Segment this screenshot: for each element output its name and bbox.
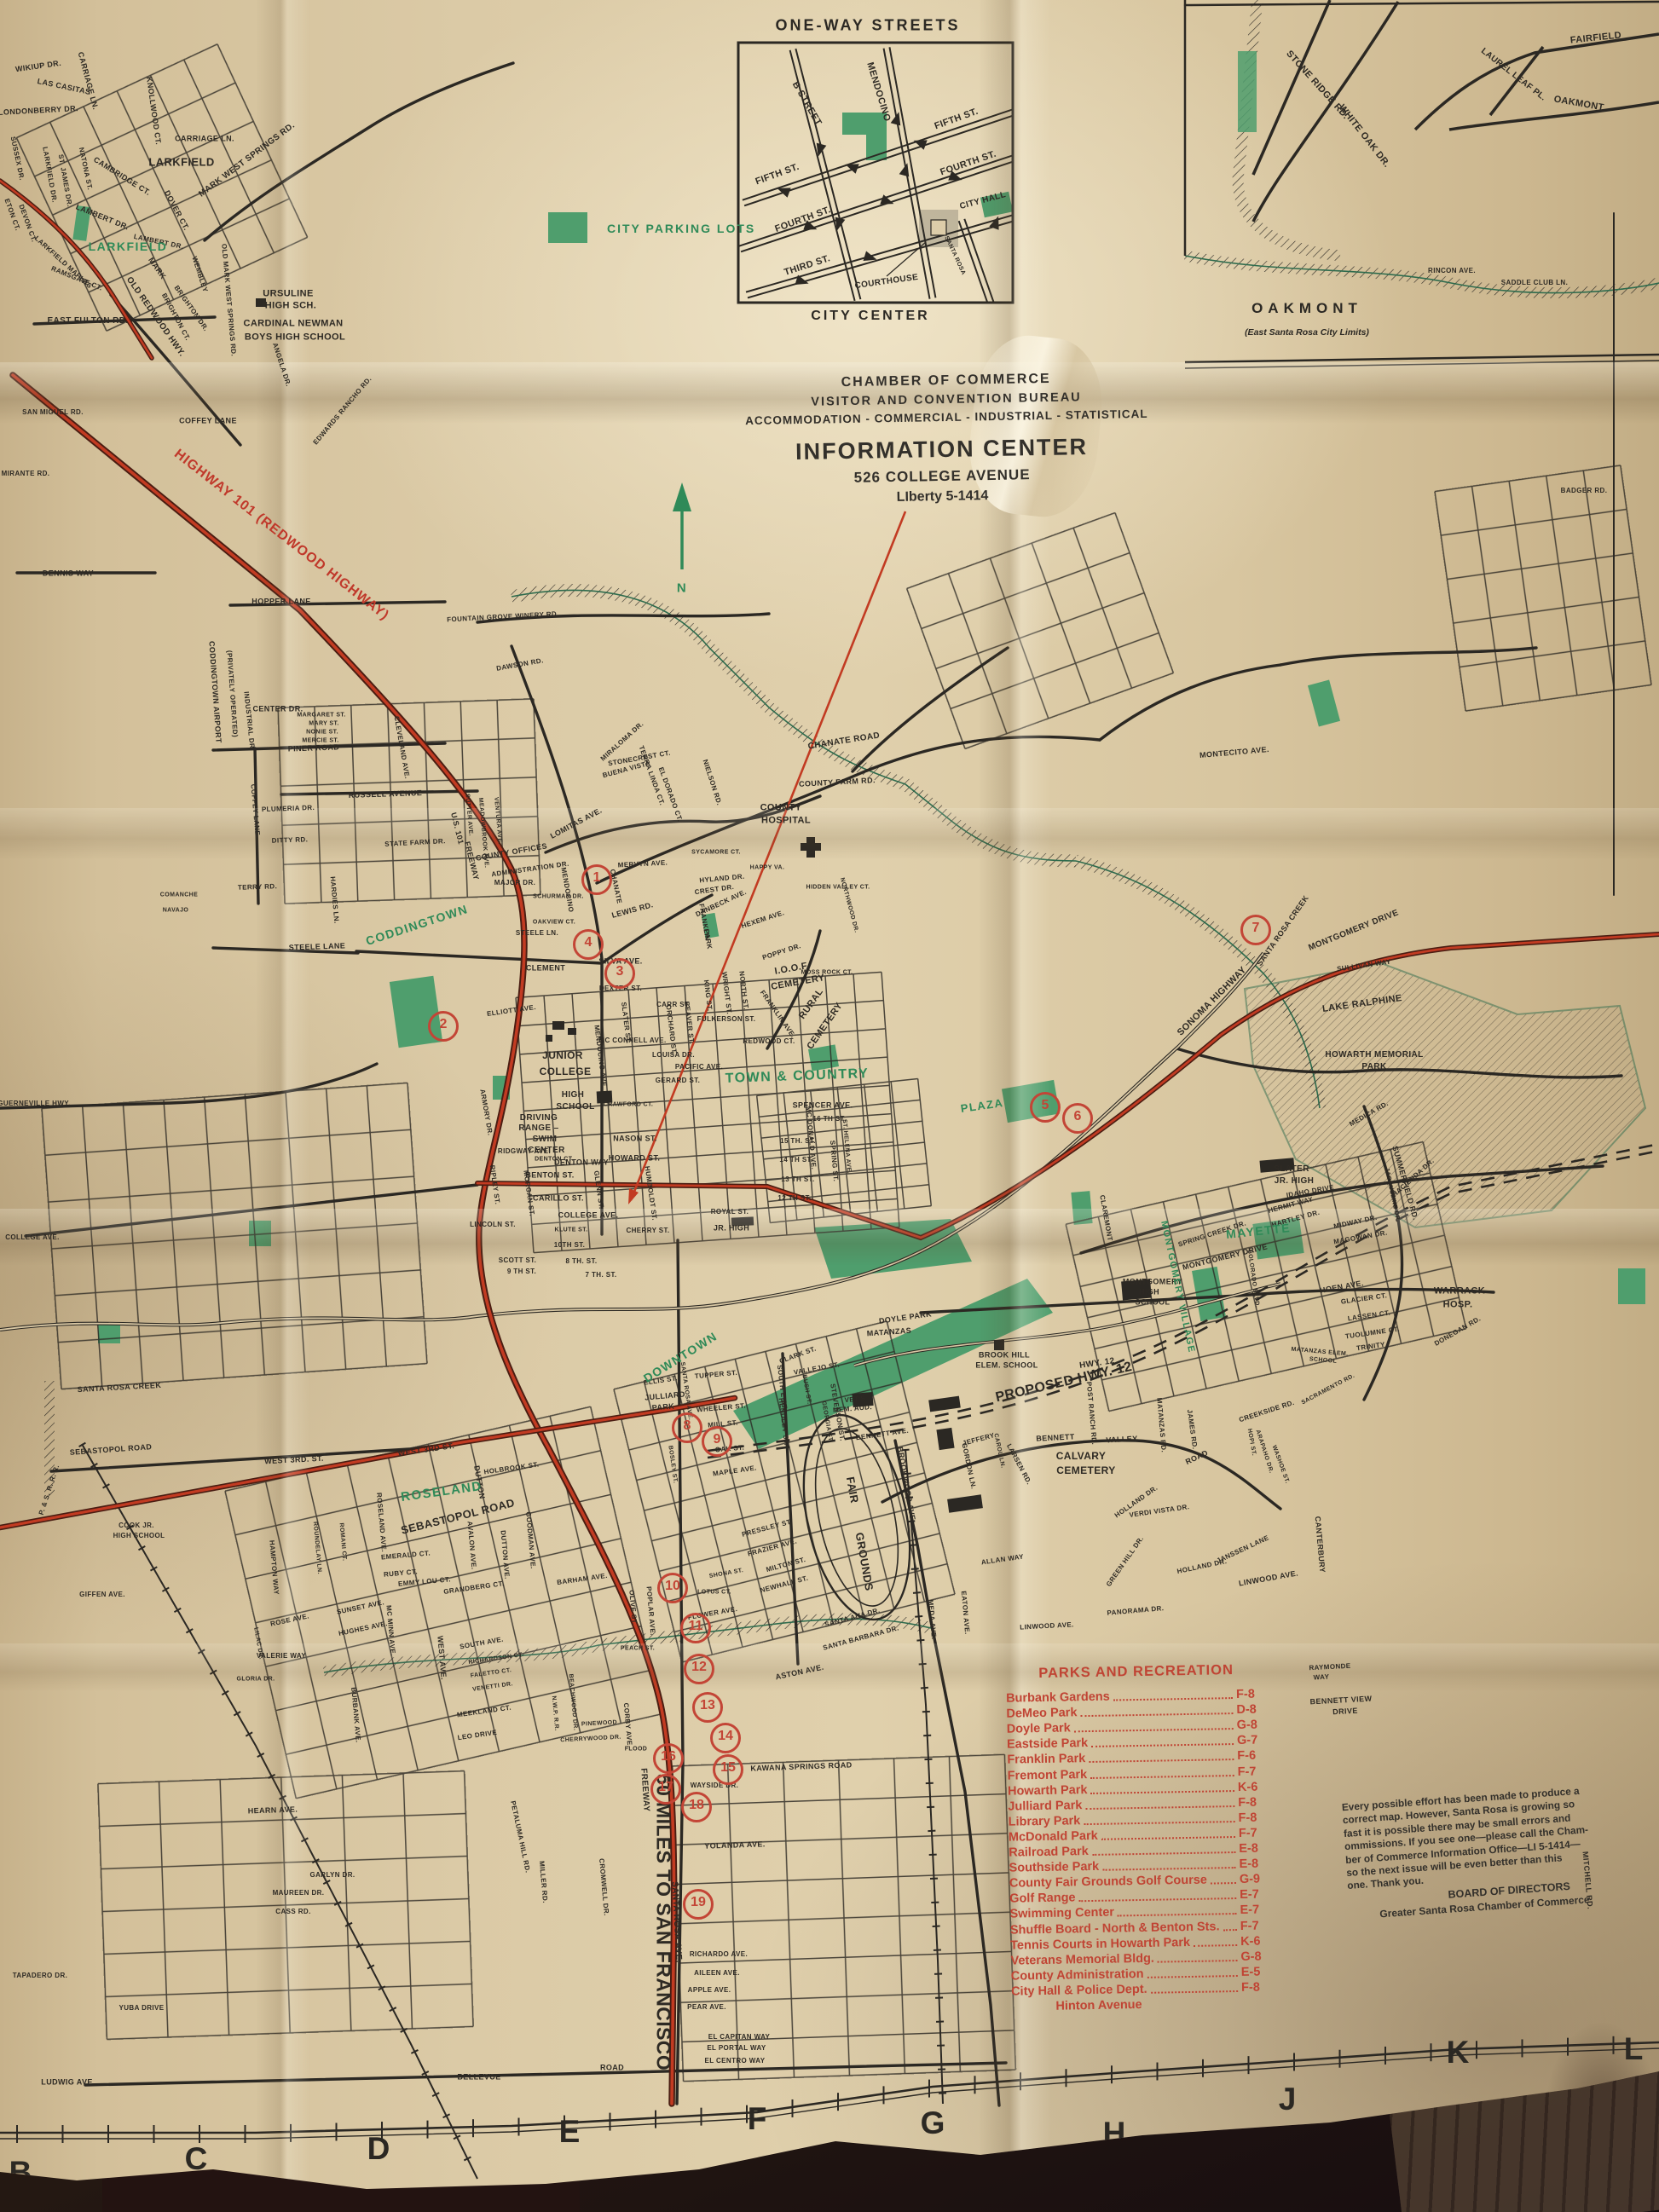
street-label: TAPADERO DR. bbox=[13, 1972, 68, 1979]
route-marker-4: 4 bbox=[573, 929, 604, 960]
street-label: ASTON AVE. bbox=[775, 1664, 824, 1682]
street-label: LARKFIELD bbox=[148, 157, 214, 168]
street-label: ELEM. SCHOOL bbox=[975, 1362, 1038, 1370]
street-label: MEEKLAND CT. bbox=[457, 1705, 512, 1719]
street-label: DEVON CT. bbox=[17, 204, 37, 243]
street-label: DUTTON AVE. bbox=[500, 1530, 511, 1580]
street-label: MARGARET ST. bbox=[297, 713, 345, 719]
street-label: DRIVE bbox=[1332, 1707, 1358, 1717]
route-marker-17: 17 bbox=[650, 1774, 681, 1805]
street-label: CLEMENT bbox=[526, 965, 565, 973]
street-label: SPENCER AVE. bbox=[793, 1102, 853, 1110]
grid-letter-L: L bbox=[1624, 2031, 1644, 2067]
street-label: OAKVIEW CT. bbox=[533, 920, 575, 926]
street-label: MOSS ROCK CT. bbox=[801, 970, 853, 976]
street-label: SAN MIGUEL RD. bbox=[22, 409, 84, 416]
street-label: DAWSON RD. bbox=[496, 657, 545, 673]
street-label: FRAZIER AVE. bbox=[747, 1538, 798, 1557]
street-label: LEO DRIVE bbox=[457, 1730, 497, 1741]
grid-letter-H: H bbox=[1103, 2116, 1126, 2151]
street-label: SONOMA HIGHWAY bbox=[1176, 965, 1248, 1037]
street-label: CREEKSIDE RD. bbox=[1238, 1400, 1295, 1424]
street-label: POPPY DR. bbox=[761, 943, 801, 962]
street-label: MIRANTE RD. bbox=[2, 471, 50, 477]
street-label: HIGH SCH. bbox=[265, 302, 316, 311]
street-label: HAPPY VA. bbox=[750, 865, 785, 871]
street-label: STEELE LANE bbox=[289, 942, 346, 951]
street-label: BOYS HIGH SCHOOL bbox=[245, 333, 345, 343]
street-label: TERRY RD. bbox=[238, 883, 278, 892]
street-label: KNOLLWOOD CT. bbox=[145, 76, 162, 145]
street-label: LOMITAS AVE. bbox=[549, 806, 604, 840]
street-label: FAIRFIELD bbox=[1569, 31, 1621, 45]
street-label: FREEWAY bbox=[639, 1768, 650, 1812]
street-label: CAMBRIDGE CT. bbox=[92, 156, 152, 197]
street-label: MAGOWAN DR. bbox=[1333, 1230, 1388, 1246]
street-label: LARSEN RD. bbox=[1005, 1443, 1032, 1486]
street-label: KING ST. bbox=[702, 979, 713, 1012]
street-label: 12 TH ST. bbox=[777, 1195, 811, 1202]
route-marker-15: 15 bbox=[713, 1754, 743, 1785]
street-label: FOURTH ST. bbox=[774, 205, 832, 234]
street-label: SUNSET AVE. bbox=[336, 1599, 384, 1616]
street-label: RAYMONDE bbox=[1309, 1663, 1350, 1672]
street-label: GOODMAN AVE. bbox=[524, 1511, 536, 1569]
street-label: PARK bbox=[702, 929, 713, 950]
street-label: JR. HIGH bbox=[1275, 1177, 1315, 1186]
street-label: COLLEGE AVE. bbox=[558, 1212, 619, 1220]
street-label: CITY HALL bbox=[959, 191, 1007, 211]
information-center-block: INFORMATION CENTER 526 COLLEGE AVENUE LI… bbox=[741, 433, 1142, 508]
street-label: EDWARDS RANCHO RD. bbox=[312, 376, 373, 447]
street-label: (PRIVATELY OPERATED) bbox=[225, 650, 238, 738]
street-label: B STREET bbox=[790, 80, 823, 127]
street-label: WEST 3RD ST. bbox=[397, 1442, 454, 1458]
paper-map: WIKIUP DR.LAS CASITASLONDONBERRY DR.CARR… bbox=[0, 0, 1659, 2212]
street-label: COFFEY LANE bbox=[249, 783, 260, 835]
street-label: WEST AVE. bbox=[436, 1636, 448, 1681]
parking-lots-swatch bbox=[548, 212, 587, 243]
route-marker-18: 18 bbox=[681, 1792, 712, 1822]
route-marker-2: 2 bbox=[428, 1011, 459, 1042]
grid-letter-E: E bbox=[559, 2114, 581, 2150]
street-label: CRAWFORD CT. bbox=[604, 1102, 653, 1108]
street-label: 10TH ST. bbox=[554, 1242, 586, 1249]
street-label: STATE FARM DR. bbox=[384, 838, 446, 848]
street-label: HARDIES LN. bbox=[329, 876, 340, 924]
street-label: FOURTH ST. bbox=[939, 150, 998, 178]
street-label: CENTER DR. bbox=[252, 706, 303, 713]
street-label: LAKE RALPHINE bbox=[1321, 994, 1402, 1014]
street-label: SANTA ANA DR. bbox=[824, 1607, 882, 1628]
street-label: ARAPAHO DR. bbox=[1254, 1429, 1274, 1475]
street-label: N.W.P. R.R. bbox=[551, 1695, 560, 1731]
street-label: SANTA ROSA CREEK bbox=[78, 1382, 162, 1394]
route-marker-5: 5 bbox=[1030, 1092, 1061, 1123]
street-label: REDWOOD CT. bbox=[743, 1038, 795, 1045]
street-label: VET'S bbox=[844, 1395, 865, 1404]
street-label: NIELSON RD. bbox=[702, 759, 723, 806]
street-label: VENETTI DR. bbox=[472, 1681, 513, 1693]
street-label: GLACIER CT. bbox=[1340, 1292, 1387, 1306]
street-label: ST. HELENA AVE. bbox=[841, 1119, 853, 1174]
street-label: RIPLEY ST. bbox=[488, 1164, 500, 1204]
street-label: VALLEY bbox=[1106, 1435, 1138, 1445]
street-label: GERARD ST. bbox=[656, 1077, 700, 1084]
street-label: GARLYN DR. bbox=[309, 1872, 355, 1879]
street-label: BEAVER ST. bbox=[683, 1001, 695, 1044]
street-label: BADGER RD. bbox=[1561, 488, 1608, 494]
district-label: ROSELAND bbox=[400, 1480, 483, 1504]
street-label: YUBA DRIVE bbox=[118, 2005, 164, 2012]
street-label: SUSSEX DR. bbox=[9, 136, 26, 182]
street-label: CAROL LN. bbox=[992, 1433, 1005, 1469]
street-label: CARDINAL NEWMAN bbox=[243, 320, 343, 329]
street-label: CLEVELAND AVE. bbox=[393, 716, 411, 780]
street-label: BENNETT AVE. bbox=[855, 1428, 909, 1442]
street-label: SULLIVAN WAY bbox=[1337, 959, 1391, 973]
street-label: MATANZAS bbox=[867, 1327, 912, 1338]
oakmont-inset-subtitle: (East Santa Rosa City Limits) bbox=[1245, 327, 1369, 338]
street-label: MILLER RD. bbox=[538, 1861, 548, 1903]
street-label: OAKMONT bbox=[1553, 95, 1605, 113]
street-label: WRIGHT ST. bbox=[720, 972, 732, 1015]
street-label: HAMPTON WAY bbox=[268, 1540, 280, 1596]
street-label: MONTECITO AVE. bbox=[1199, 746, 1269, 759]
street-label: ROSE AVE. bbox=[270, 1613, 310, 1627]
street-label: RUBY CT. bbox=[384, 1568, 418, 1578]
street-label: ROSELAND AVE. bbox=[375, 1493, 387, 1553]
street-label: DITTY RD. bbox=[272, 836, 309, 844]
oakmont-inset-title: OAKMONT bbox=[1251, 300, 1362, 317]
street-label: SCHOOL bbox=[556, 1103, 594, 1112]
street-label: SYCAMORE CT. bbox=[691, 850, 741, 856]
street-label: STEELE LN. bbox=[516, 930, 558, 937]
street-label: RINCON AVE. bbox=[1428, 268, 1476, 274]
street-label: COMANCHE bbox=[160, 892, 198, 898]
street-label: 7 TH. ST. bbox=[586, 1272, 617, 1279]
street-label: VALERIE WAY bbox=[257, 1653, 306, 1660]
street-label: HOWARD ST. bbox=[609, 1155, 661, 1163]
route-marker-3: 3 bbox=[604, 958, 635, 989]
street-label: BURBANK AVE. bbox=[350, 1687, 361, 1743]
street-label: WASHOE ST. bbox=[1271, 1445, 1291, 1485]
street-label: DRIVING bbox=[520, 1114, 558, 1123]
route-marker-14: 14 bbox=[710, 1723, 741, 1753]
route-marker-9: 9 bbox=[702, 1426, 732, 1457]
street-label: SADDLE CLUB LN. bbox=[1501, 280, 1568, 286]
street-label: DONEGAN RD. bbox=[1433, 1315, 1482, 1348]
street-label: MEM. AUD. bbox=[833, 1404, 872, 1414]
street-label: LAUREL LEAF PL. bbox=[1479, 47, 1547, 103]
street-label: ROYAL ST. bbox=[711, 1209, 749, 1216]
street-label: HOSP. bbox=[1443, 1301, 1473, 1310]
parks-recreation-list: PARKS AND RECREATION Burbank GardensF-8D… bbox=[1005, 1661, 1272, 2013]
street-label: GUERNEVILLE HWY. bbox=[0, 1100, 71, 1107]
street-label: MAUREEN DR. bbox=[273, 1890, 325, 1897]
district-label: N bbox=[677, 582, 687, 595]
street-label: LOTUS CT. bbox=[697, 1590, 731, 1596]
street-label: PRESSLEY ST. bbox=[741, 1518, 793, 1539]
street-label: PANORAMA DR. bbox=[1107, 1605, 1164, 1617]
street-label: CASS RD. bbox=[275, 1909, 310, 1915]
street-label: EL CENTRO WAY bbox=[705, 2058, 766, 2065]
street-label: 14 TH ST. bbox=[779, 1157, 812, 1164]
street-label: MATANZAS RD. bbox=[1155, 1398, 1167, 1453]
street-label: ANGELA DR. bbox=[271, 342, 292, 387]
street-label: MONTGOMERY DRIVE bbox=[1182, 1243, 1269, 1272]
street-label: NEWHALL ST. bbox=[760, 1575, 809, 1595]
street-label: JUNIOR bbox=[542, 1050, 583, 1060]
street-label: GEORGIA ST. bbox=[820, 1401, 833, 1443]
street-label: HOSPITAL bbox=[761, 817, 811, 826]
street-label: CEMETERY bbox=[1056, 1465, 1115, 1476]
one-way-inset-title: ONE-WAY STREETS bbox=[775, 17, 960, 35]
grid-letter-B: B bbox=[9, 2155, 32, 2191]
street-label: PARK bbox=[1361, 1063, 1386, 1071]
street-label: CODDINGTOWN AIRPORT bbox=[207, 641, 222, 743]
street-label: PLUMERIA DR. bbox=[262, 805, 315, 813]
district-label: LARKFIELD bbox=[89, 240, 168, 252]
street-label: APPLE AVE. bbox=[688, 1987, 731, 1994]
street-label: MENDOCINO bbox=[864, 61, 892, 123]
street-label: MERVYN AVE. bbox=[618, 859, 668, 869]
street-label: CLARK ST. bbox=[778, 1345, 817, 1365]
street-label: SCHOOL bbox=[1309, 1356, 1338, 1365]
street-label: SWIM bbox=[533, 1135, 558, 1144]
street-label: ALLAN WAY bbox=[980, 1554, 1024, 1567]
street-label: BEACHWOOD DR. bbox=[568, 1673, 579, 1730]
street-label: WEMBLEY bbox=[190, 256, 208, 293]
street-label: SCOTT ST. bbox=[499, 1257, 537, 1264]
street-label: RIDGWAY AVE. bbox=[498, 1148, 551, 1155]
street-label: 50 MILES TO SAN FRANCISCO bbox=[654, 1774, 673, 2071]
street-label: 8 TH. ST. bbox=[566, 1258, 598, 1265]
street-label: JR. HIGH bbox=[714, 1225, 749, 1233]
street-label: CORBY AVE. bbox=[622, 1702, 633, 1747]
grid-letter-G: G bbox=[921, 2105, 945, 2141]
street-label: NONIE ST. bbox=[306, 730, 338, 736]
street-label: HEXEM AVE. bbox=[741, 910, 785, 930]
street-label: DOVER CT. bbox=[163, 189, 190, 232]
street-label: MC MINN AVE. bbox=[384, 1605, 396, 1656]
street-label: SUTTER AVE. bbox=[464, 794, 473, 836]
street-label: COURTHOUSE bbox=[854, 274, 919, 291]
street-label: ADMINISTRATION DR. bbox=[491, 861, 569, 879]
street-label: BROOKWOOD AVE. bbox=[896, 1447, 917, 1524]
street-label: LASSEN CT. bbox=[1347, 1310, 1390, 1323]
street-label: EAST FULTON RD. bbox=[47, 317, 128, 326]
street-label: GLENN ST. bbox=[592, 1170, 604, 1210]
street-label: HYLAND DR. bbox=[699, 874, 745, 885]
street-label: COOK JR. bbox=[118, 1522, 154, 1529]
street-label: FULKERSON ST. bbox=[697, 1016, 756, 1023]
street-label: NATONA ST. bbox=[78, 147, 93, 191]
route-marker-19: 19 bbox=[683, 1889, 714, 1920]
street-label: FLOOD bbox=[625, 1747, 648, 1753]
street-label: GREEN HILL DR. bbox=[1106, 1535, 1146, 1588]
street-label: WARRACK bbox=[1434, 1287, 1485, 1297]
street-label: BARHAM AVE. bbox=[557, 1573, 608, 1586]
street-label: HIGH bbox=[1139, 1289, 1159, 1297]
street-label: RURAL bbox=[798, 987, 825, 1020]
route-marker-13: 13 bbox=[692, 1692, 723, 1723]
street-label: EL PORTAL WAY bbox=[707, 2045, 766, 2052]
street-label: ARMORY DR. bbox=[478, 1089, 493, 1136]
street-label: MEDICA RD. bbox=[1349, 1100, 1390, 1129]
street-label: BROOK HILL bbox=[979, 1352, 1030, 1360]
street-label: THIRD ST. bbox=[783, 254, 832, 278]
street-label: WHEELER ST. bbox=[697, 1402, 747, 1413]
street-label: PINER ROAD bbox=[288, 743, 340, 753]
street-label: LUDWIG AVE. bbox=[41, 2079, 95, 2087]
disclaimer-block: Every possible effort has been made to p… bbox=[1341, 1782, 1620, 1922]
street-label: MC CONNELL AVE. bbox=[598, 1037, 666, 1044]
route-marker-1: 1 bbox=[581, 864, 612, 895]
district-label: TOWN & COUNTRY bbox=[725, 1067, 869, 1086]
street-label: URSULINE bbox=[263, 290, 313, 299]
street-label: INDUSTRIAL DR. bbox=[242, 691, 255, 751]
street-label: P. & S. R. R. R. bbox=[38, 1464, 61, 1516]
street-label: MONTGOMERY DRIVE bbox=[1308, 909, 1401, 953]
street-label: COUNTY FARM RD. bbox=[799, 777, 876, 788]
disclaimer-lines: Every possible effort has been made to p… bbox=[1341, 1782, 1618, 1893]
street-label: LARKFIELD DR. bbox=[41, 147, 57, 204]
street-label: CARILLO ST. bbox=[533, 1195, 584, 1203]
map-photo: WIKIUP DR.LAS CASITASLONDONBERRY DR.CARR… bbox=[0, 0, 1659, 2212]
street-label: VERDI VISTA DR. bbox=[1129, 1504, 1190, 1519]
grid-letter-F: F bbox=[748, 2101, 767, 2137]
route-marker-6: 6 bbox=[1062, 1103, 1093, 1134]
street-label: LOUISA DR. bbox=[652, 1052, 695, 1059]
street-label: TUPPER ST. bbox=[695, 1370, 738, 1380]
street-label: MENDOCINO AVE. bbox=[592, 1025, 607, 1089]
street-label: GIFFEN AVE. bbox=[79, 1591, 125, 1598]
street-label: ETON CT. bbox=[3, 198, 20, 232]
street-label: MENDOCINO bbox=[559, 867, 574, 913]
street-label: WAY bbox=[1313, 1674, 1329, 1682]
street-label: HOPPER LANE bbox=[251, 598, 310, 606]
street-label: LINWOOD AVE. bbox=[1020, 1621, 1074, 1631]
street-label: SCHOOL bbox=[1136, 1299, 1171, 1307]
street-label: GRANDBERG CT. bbox=[443, 1580, 505, 1596]
district-label: CODDINGTOWN bbox=[364, 903, 469, 947]
route-marker-12: 12 bbox=[684, 1654, 714, 1684]
street-label: PEACH ST. bbox=[621, 1646, 655, 1652]
street-label: CROMWELL DR. bbox=[598, 1858, 610, 1916]
street-label: PINEWOOD bbox=[581, 1719, 617, 1727]
street-label: LONDONBERRY DR. bbox=[0, 105, 78, 117]
route-marker-16: 16 bbox=[653, 1743, 684, 1774]
street-label: NAVAJO bbox=[163, 908, 189, 914]
street-label: EATON AVE. bbox=[960, 1591, 970, 1635]
street-label: COLORADO BLVD. bbox=[1246, 1249, 1261, 1308]
street-label: GLORIA DR. bbox=[237, 1677, 275, 1683]
street-label: FIFTH ST. bbox=[754, 163, 801, 188]
street-label: COFFEY LANE bbox=[179, 418, 237, 425]
street-label: DENNIS WAY bbox=[43, 570, 94, 578]
street-label: 13 TH ST. bbox=[781, 1176, 814, 1183]
street-label: BENTON ST. bbox=[525, 1172, 574, 1180]
street-label: MIDWAY DR. bbox=[1333, 1215, 1379, 1231]
street-label: ELLIOTT AVE. bbox=[487, 1004, 537, 1018]
street-label: CLAREMONT bbox=[1098, 1194, 1113, 1241]
street-label: CARRIAGE LN. bbox=[77, 51, 100, 111]
street-label: SANTA ROSA bbox=[943, 235, 966, 276]
parking-lots-legend-label: CITY PARKING LOTS bbox=[607, 222, 755, 235]
grid-letter-J: J bbox=[1279, 2082, 1297, 2117]
street-label: AILEEN AVE. bbox=[694, 1970, 740, 1977]
street-label: RICHARDO AVE. bbox=[690, 1951, 748, 1958]
street-label: CARRIAGE LN. bbox=[175, 136, 234, 143]
street-label: KAWANA SPRINGS ROAD bbox=[750, 1761, 853, 1772]
street-label: JANSSEN LANE bbox=[1216, 1534, 1270, 1564]
street-label: LAMBERT DR. bbox=[75, 203, 130, 231]
street-label: 9 TH ST. bbox=[507, 1268, 536, 1275]
street-label: ST. JAMES DR. bbox=[57, 154, 73, 208]
street-label: AVALON AVE. bbox=[466, 1521, 477, 1569]
street-label: ORCHARD ST. bbox=[664, 1004, 677, 1055]
street-label: HIGH SCHOOL bbox=[113, 1533, 165, 1539]
street-label: CALVARY bbox=[1056, 1451, 1107, 1461]
street-label: SOUTH AVE. bbox=[460, 1637, 505, 1651]
street-label: CANTERBURY bbox=[1314, 1516, 1327, 1573]
street-label: COUNTY bbox=[760, 804, 802, 813]
street-label: KLUTE ST. bbox=[555, 1227, 588, 1233]
route-marker-8: 8 bbox=[672, 1412, 702, 1443]
street-label: MARK bbox=[147, 257, 167, 281]
street-label: EMMY LOU CT. bbox=[398, 1576, 451, 1587]
street-label: HOLBROOK ST. bbox=[483, 1461, 540, 1476]
one-way-inset-caption: CITY CENTER bbox=[811, 309, 929, 324]
street-label: MAJOR DR. bbox=[494, 880, 536, 887]
street-label: ROUNDELAY LN. bbox=[312, 1522, 322, 1574]
street-label: VENTURA AVE. bbox=[493, 797, 503, 845]
street-label: SCHURMAN DR. bbox=[533, 894, 584, 900]
street-label: U.S. 101 bbox=[449, 811, 465, 845]
street-label: OLD MARK WEST SPRINGS RD. bbox=[220, 244, 237, 357]
street-label: FRANKLIN AVE. bbox=[759, 990, 796, 1040]
street-label: WIKIUP DR. bbox=[14, 60, 61, 73]
street-label: DOYLE PARK bbox=[879, 1310, 933, 1325]
street-label: NASON ST. bbox=[613, 1135, 657, 1143]
street-label: POST RANCH RD. bbox=[1085, 1382, 1097, 1446]
street-label: ROAD bbox=[600, 2065, 624, 2072]
street-label: OLIVE ST. bbox=[627, 1590, 638, 1626]
street-label: RUSSELL AVENUE bbox=[349, 789, 423, 800]
street-label: FIFTH ST. bbox=[934, 107, 980, 132]
street-label: CHANATE ROAD bbox=[807, 731, 881, 751]
street-label: SACRAMENTO RD. bbox=[1301, 1373, 1356, 1406]
street-label: HIGH bbox=[562, 1091, 585, 1100]
street-label: TRINITY bbox=[1356, 1342, 1386, 1353]
street-label: BENNETT VIEW bbox=[1309, 1695, 1372, 1707]
street-label: MILTON ST. bbox=[766, 1556, 806, 1574]
street-label: POPLAR AVE. bbox=[645, 1586, 656, 1636]
street-label: BOSLEY ST. bbox=[667, 1445, 678, 1483]
street-label: BUSH ST. bbox=[801, 1374, 812, 1405]
street-label: SANTA BARBARA DR. bbox=[823, 1625, 900, 1651]
district-label: PLAZA bbox=[960, 1097, 1004, 1114]
street-label: GORDON LN. bbox=[960, 1442, 976, 1490]
street-label: RICHARDSON CT. bbox=[468, 1652, 524, 1666]
street-label: SHONA ST. bbox=[708, 1568, 743, 1580]
street-label: PARK bbox=[651, 1402, 674, 1412]
street-label: MAPLE AVE. bbox=[713, 1464, 758, 1477]
street-label: TUOLUMNE CT. bbox=[1345, 1326, 1401, 1341]
street-label: NORTH ST. bbox=[737, 971, 749, 1010]
street-label: WHITE OAK DR. bbox=[1337, 103, 1391, 170]
